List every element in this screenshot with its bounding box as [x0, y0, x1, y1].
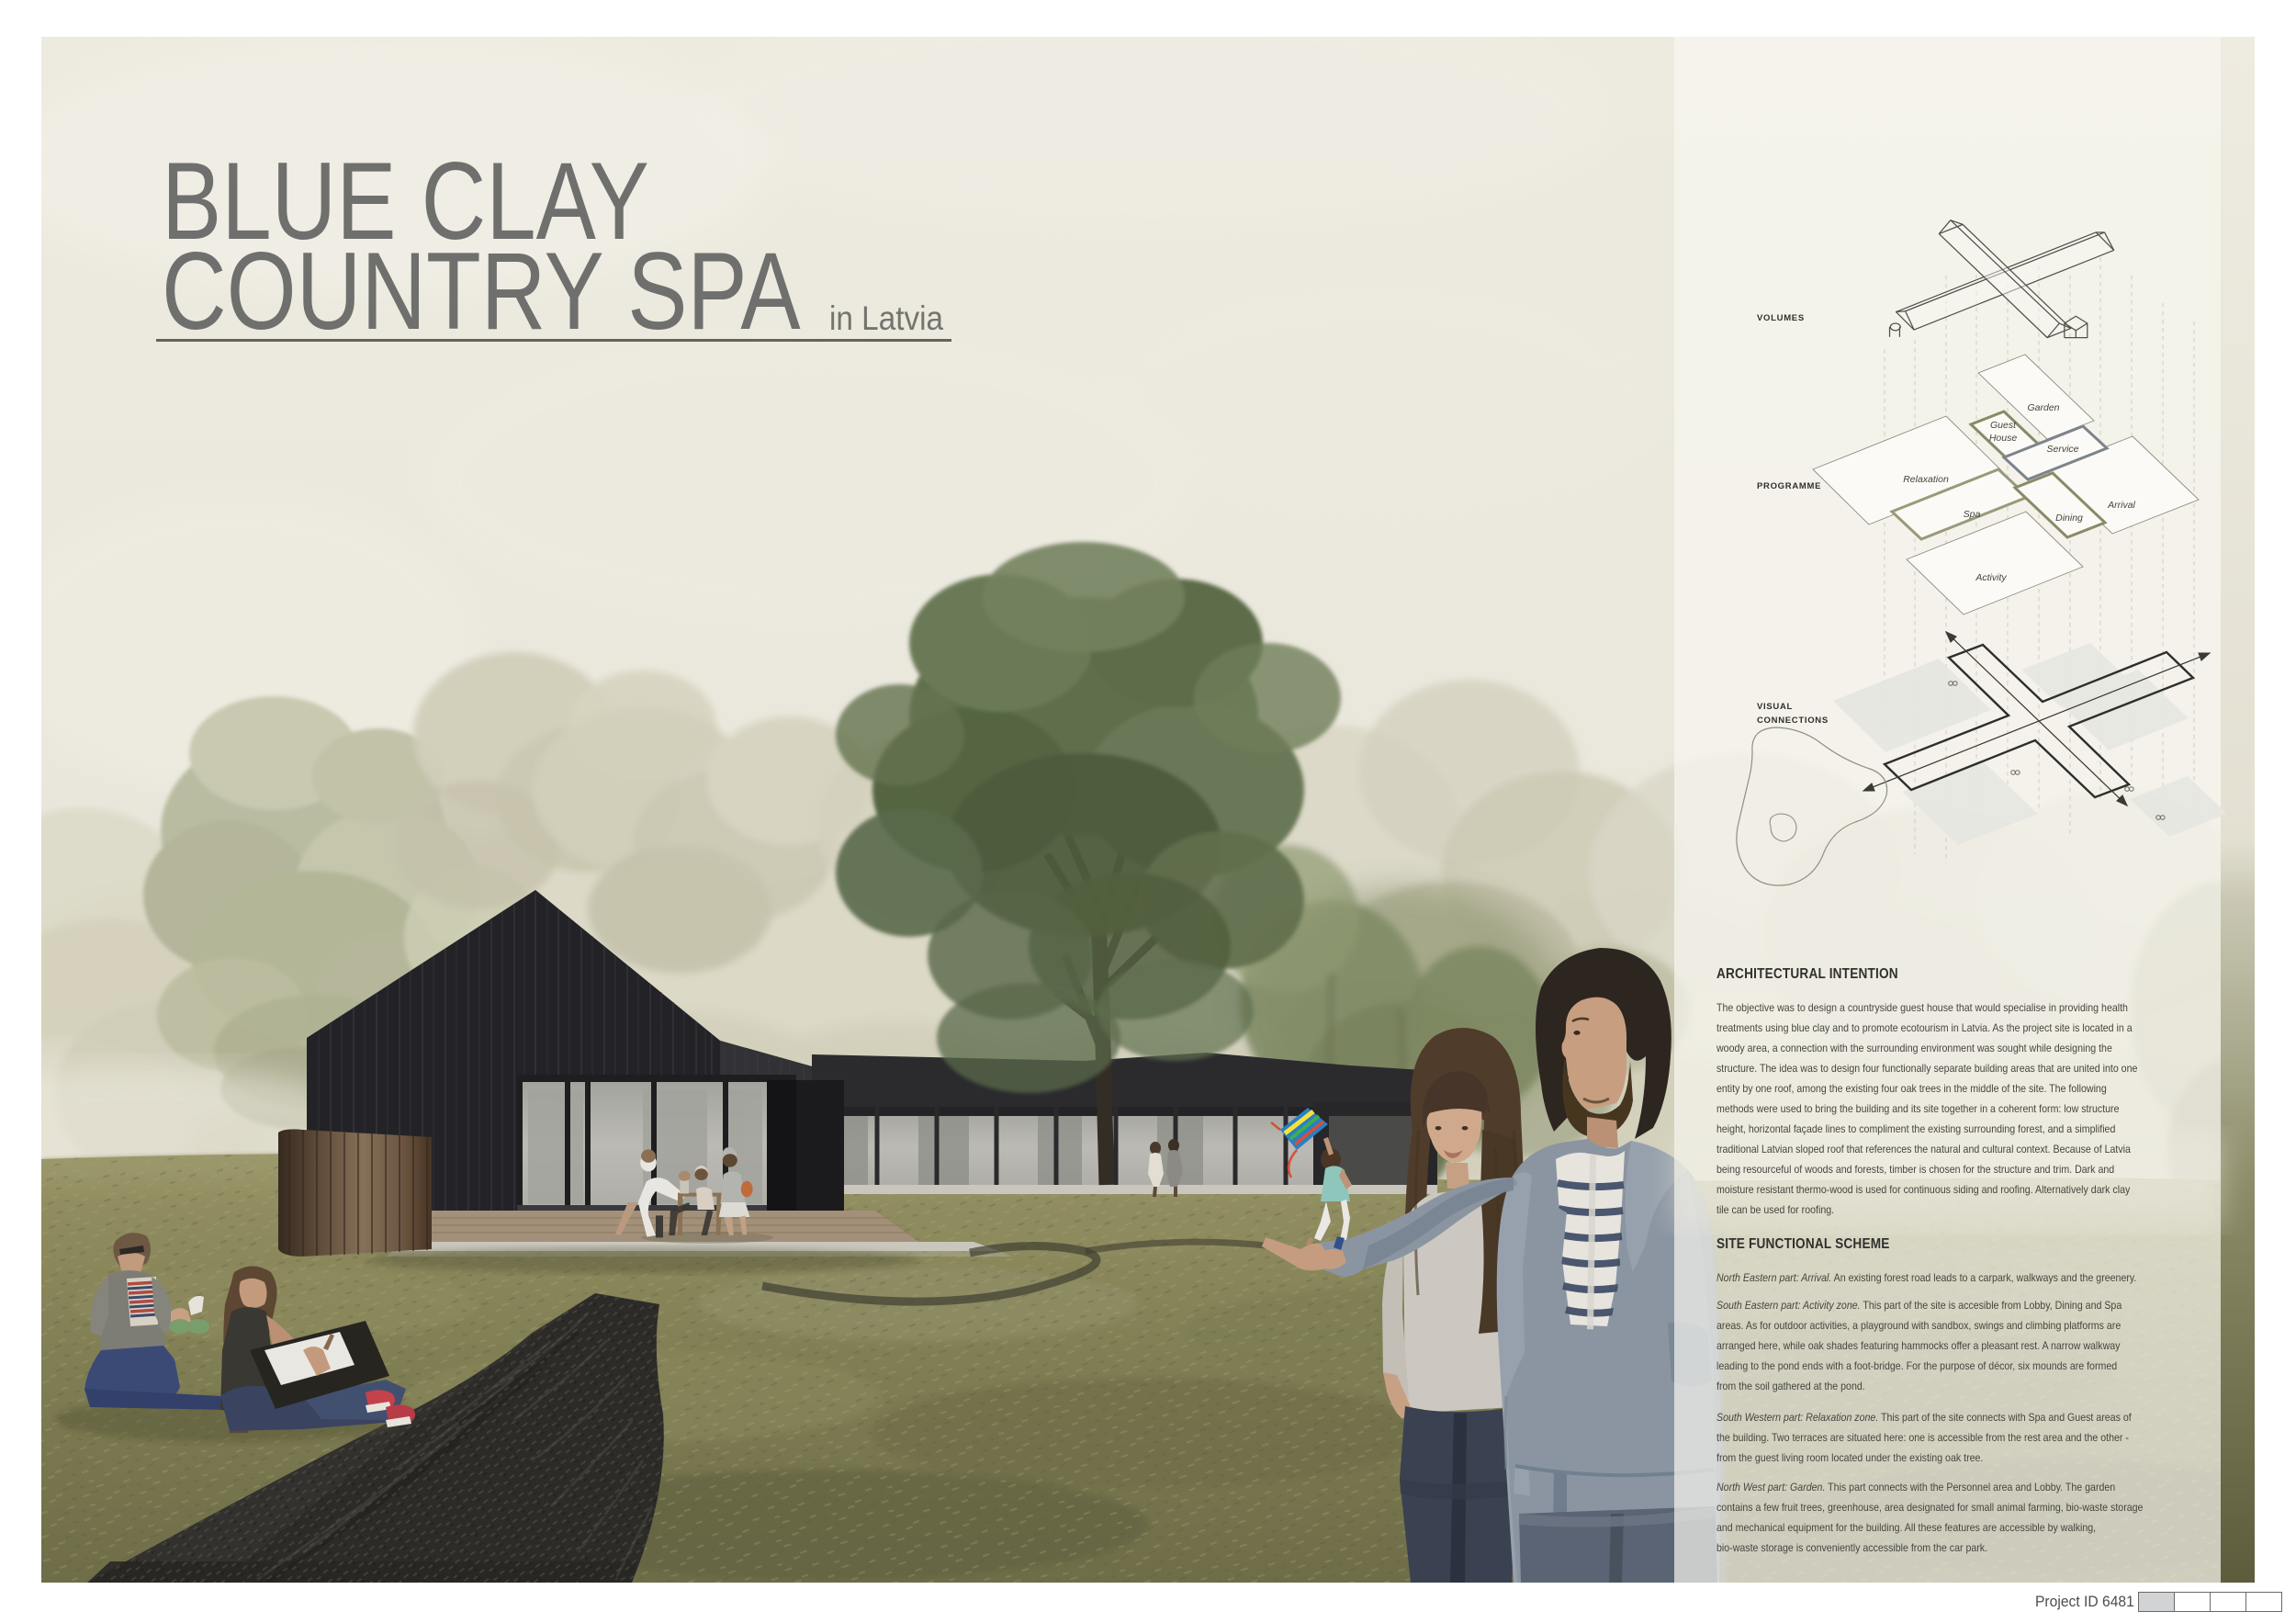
svg-text:VISUAL: VISUAL: [1757, 702, 1793, 712]
svg-text:Activity: Activity: [1975, 572, 2007, 583]
svg-text:Relaxation: Relaxation: [1903, 474, 1949, 485]
svg-text:Spa: Spa: [1964, 509, 1981, 520]
svg-text:Garden: Garden: [2027, 402, 2059, 413]
svg-text:Guest: Guest: [1990, 420, 2017, 431]
svg-text:Dining: Dining: [2055, 513, 2083, 524]
svg-text:House: House: [1989, 433, 2018, 444]
svg-text:CONNECTIONS: CONNECTIONS: [1757, 716, 1829, 726]
svg-text:Service: Service: [2046, 444, 2078, 455]
svg-text:VOLUMES: VOLUMES: [1757, 313, 1805, 323]
svg-text:Arrival: Arrival: [2107, 500, 2135, 511]
svg-text:PROGRAMME: PROGRAMME: [1757, 481, 1821, 491]
